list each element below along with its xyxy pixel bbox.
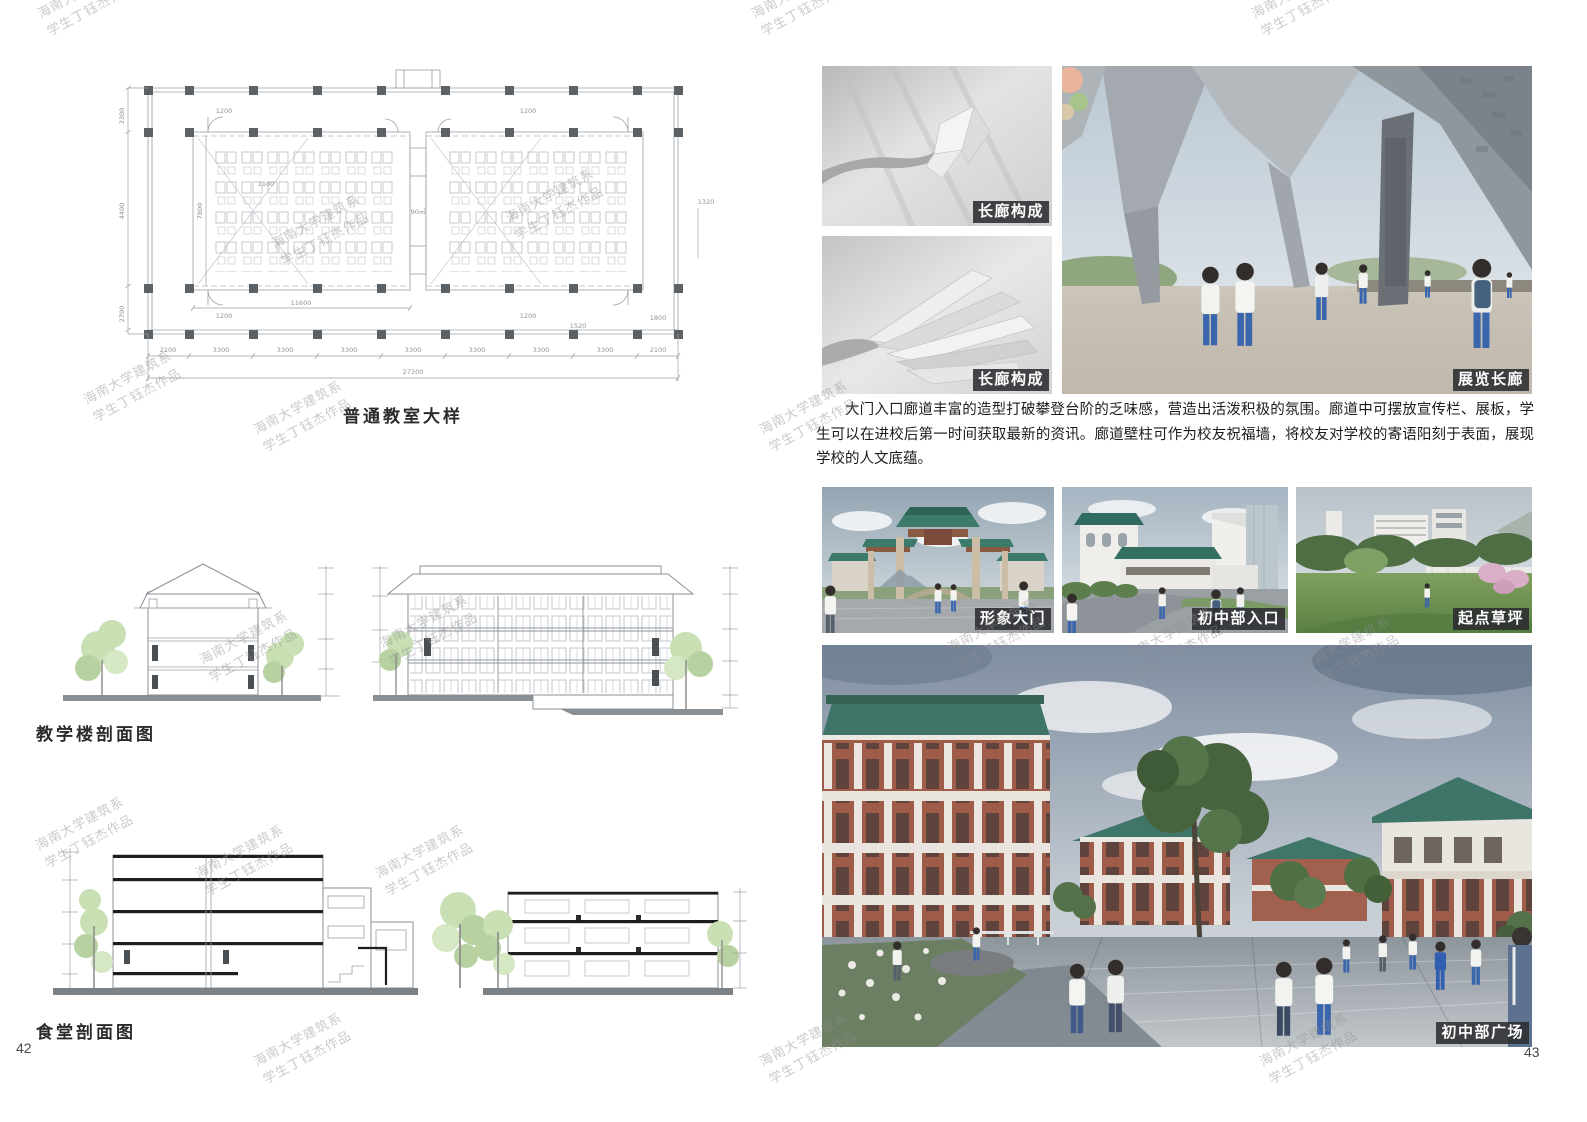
canteen-section-title: 食堂剖面图 xyxy=(36,1018,136,1043)
canteen-section-1 xyxy=(53,848,489,995)
svg-text:3300: 3300 xyxy=(405,346,422,354)
svg-text:3300: 3300 xyxy=(277,346,294,354)
left-building xyxy=(822,695,1050,943)
svg-text:3300: 3300 xyxy=(469,346,486,354)
watermark: 海南大学建筑系学生丁钰杰作品 xyxy=(1248,0,1353,42)
caption-badge: 初中部入口 xyxy=(1192,608,1285,630)
svg-text:1800: 1800 xyxy=(650,314,667,322)
paragraph-text: 大门入口廊道丰富的造型打破攀登台阶的乏味感，营造出活泼积极的氛围。廊道中可摆放宣… xyxy=(816,398,1534,472)
svg-text:3300: 3300 xyxy=(213,346,230,354)
svg-text:2100: 2100 xyxy=(160,346,177,354)
teaching-sections-drawing xyxy=(28,548,748,716)
teaching-long-section xyxy=(372,566,738,715)
photo-corridor-study-1: 长廊构成 xyxy=(822,66,1052,226)
svg-text:4400: 4400 xyxy=(118,203,126,220)
svg-text:11600: 11600 xyxy=(291,299,312,307)
plan-desks-left xyxy=(213,150,395,272)
classroom-plan-drawing: 2100 3300 3300 3300 3300 3300 3300 3300 … xyxy=(58,58,748,398)
watermark: 海南大学建筑系学生丁钰杰作品 xyxy=(34,0,139,42)
caption-badge: 起点草坪 xyxy=(1453,608,1529,630)
photo-starting-lawn: 起点草坪 xyxy=(1296,487,1532,633)
exhibit-panel xyxy=(1378,112,1414,306)
svg-text:1100: 1100 xyxy=(258,180,275,188)
caption-badge: 长廊构成 xyxy=(973,369,1049,391)
photo-exhibition-corridor: 展览长廊 xyxy=(1062,66,1532,394)
svg-text:27300: 27300 xyxy=(403,368,424,376)
svg-text:1200: 1200 xyxy=(216,107,233,115)
svg-text:1200: 1200 xyxy=(520,312,537,320)
junior-plaza-svg xyxy=(822,645,1532,1047)
svg-text:1200: 1200 xyxy=(216,312,233,320)
classroom-plan-svg: 2100 3300 3300 3300 3300 3300 3300 3300 … xyxy=(58,58,748,398)
svg-text:1200: 1200 xyxy=(520,107,537,115)
photo-junior-plaza: 初中部广场 xyxy=(822,645,1532,1047)
body-paragraph: 大门入口廊道丰富的造型打破攀登台阶的乏味感，营造出活泼积极的氛围。廊道中可摆放宣… xyxy=(816,398,1534,472)
caption-badge: 长廊构成 xyxy=(973,201,1049,223)
photo-image-gate: 形象大门 xyxy=(822,487,1054,633)
plan-desks-right xyxy=(446,150,628,272)
svg-text:2700: 2700 xyxy=(118,306,126,323)
svg-text:7800: 7800 xyxy=(196,203,204,220)
svg-text:1320: 1320 xyxy=(698,198,715,206)
svg-text:3300: 3300 xyxy=(341,346,358,354)
watermark: 海南大学建筑系学生丁钰杰作品 xyxy=(250,1008,355,1090)
svg-text:3300: 3300 xyxy=(597,346,614,354)
canteen-sections-svg xyxy=(28,830,748,1015)
photo-junior-entrance: 初中部入口 xyxy=(1062,487,1288,633)
svg-text:90㎡: 90㎡ xyxy=(411,207,426,216)
plan-title: 普通教室大样 xyxy=(58,402,748,427)
svg-text:2100: 2100 xyxy=(650,346,667,354)
canteen-sections-drawing xyxy=(28,830,748,1015)
teaching-section-title: 教学楼剖面图 xyxy=(36,720,156,745)
watermark: 海南大学建筑系学生丁钰杰作品 xyxy=(748,0,853,42)
exhibition-corridor-svg xyxy=(1062,66,1532,394)
photo-corridor-study-2: 长廊构成 xyxy=(822,236,1052,394)
canteen-section-2 xyxy=(475,888,747,995)
page-number-right: 43 xyxy=(1524,1044,1540,1060)
caption-badge: 初中部广场 xyxy=(1436,1022,1529,1044)
page-number-left: 42 xyxy=(16,1040,32,1056)
caption-badge: 形象大门 xyxy=(975,608,1051,630)
teaching-sections-svg xyxy=(28,548,748,716)
svg-text:1520: 1520 xyxy=(570,322,587,330)
teaching-cross-section xyxy=(63,564,340,701)
svg-text:3300: 3300 xyxy=(533,346,550,354)
svg-text:2300: 2300 xyxy=(118,108,126,125)
caption-badge: 展览长廊 xyxy=(1453,369,1529,391)
